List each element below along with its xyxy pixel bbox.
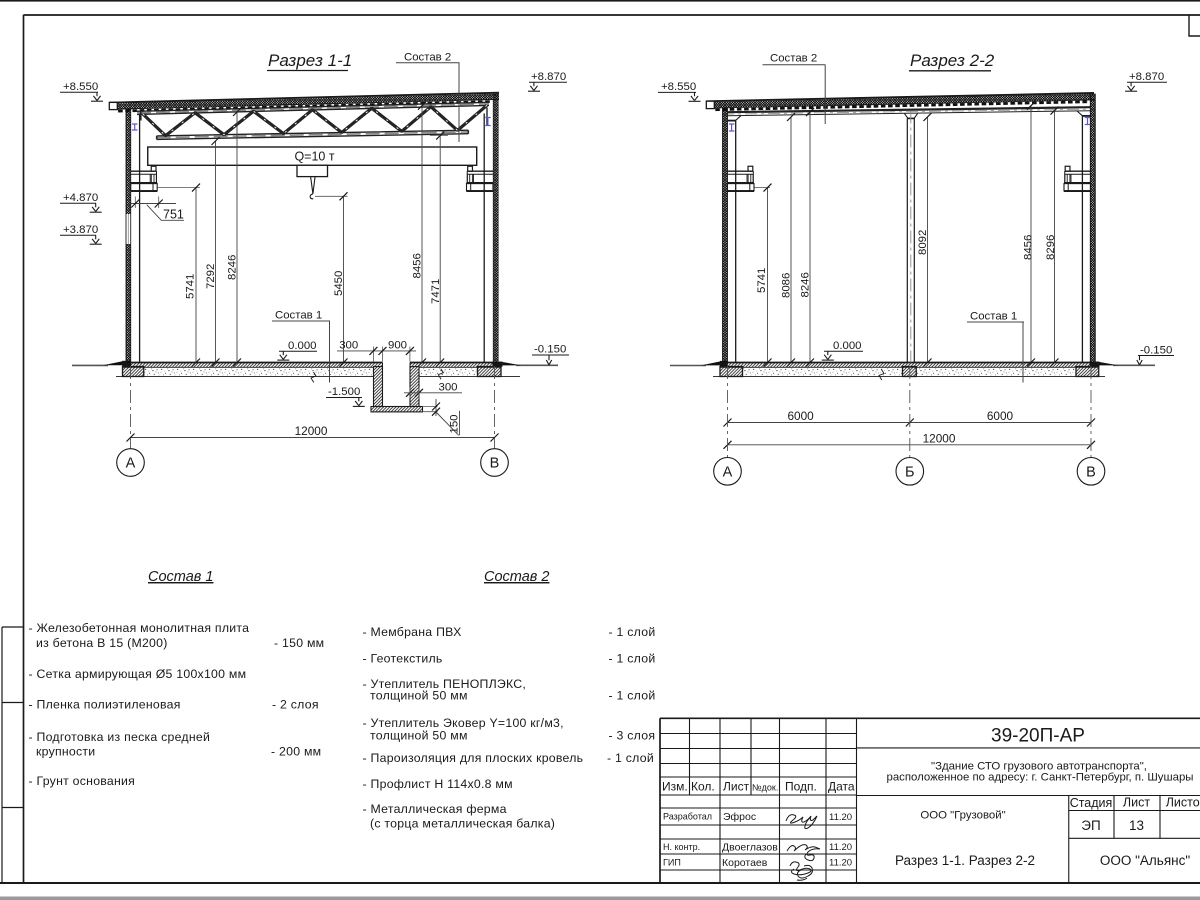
- svg-text:А: А: [126, 456, 136, 472]
- svg-text:Состав 2: Состав 2: [770, 53, 817, 65]
- svg-text:Коротаев: Коротаев: [722, 857, 768, 869]
- svg-text:11.20: 11.20: [829, 812, 852, 823]
- svg-text:11.20: 11.20: [829, 858, 852, 869]
- svg-text:-0.150: -0.150: [534, 344, 566, 356]
- svg-text:Листов: Листов: [1166, 796, 1200, 810]
- svg-text:- 150 мм: - 150 мм: [274, 636, 324, 650]
- svg-text:А: А: [723, 464, 733, 480]
- svg-text:6000: 6000: [987, 409, 1014, 423]
- svg-text:- Пленка полиэтиленовая: - Пленка полиэтиленовая: [29, 698, 181, 712]
- svg-text:13: 13: [1129, 818, 1144, 833]
- svg-text:0.000: 0.000: [833, 340, 862, 352]
- svg-text:ГИП: ГИП: [663, 858, 681, 868]
- svg-text:Состав 2: Состав 2: [404, 52, 451, 64]
- svg-text:Эфрос: Эфрос: [723, 811, 756, 823]
- svg-text:+8.550: +8.550: [661, 81, 696, 93]
- svg-text:расположенное по адресу: г. Са: расположенное по адресу: г. Санкт-Петерб…: [887, 772, 1194, 784]
- svg-text:Состав 2: Состав 2: [484, 569, 549, 585]
- svg-text:В: В: [490, 456, 500, 472]
- svg-text:5450: 5450: [333, 271, 345, 296]
- svg-text:-1.500: -1.500: [328, 386, 360, 398]
- svg-text:7471: 7471: [430, 279, 442, 304]
- svg-text:Состав 1: Состав 1: [275, 310, 322, 322]
- svg-text:Н. контр.: Н. контр.: [663, 842, 700, 852]
- svg-text:- Металлическая ферма: - Металлическая ферма: [363, 802, 507, 816]
- svg-text:Разработал: Разработал: [663, 812, 712, 822]
- svg-text:- 1 слой: - 1 слой: [609, 652, 656, 666]
- svg-text:- 1 слой: - 1 слой: [609, 625, 656, 639]
- svg-text:- Сетка армирующая Ø5 100х100: - Сетка армирующая Ø5 100х100 мм: [29, 667, 247, 681]
- svg-text:Разрез 1-1: Разрез 1-1: [268, 51, 352, 70]
- svg-text:751: 751: [163, 208, 184, 222]
- svg-text:ООО "Альянс": ООО "Альянс": [1100, 853, 1190, 868]
- svg-text:- 1 слой: - 1 слой: [607, 751, 654, 765]
- svg-text:Разрез 2-2: Разрез 2-2: [910, 51, 995, 70]
- svg-text:Состав 1: Состав 1: [970, 311, 1017, 323]
- svg-text:7292: 7292: [205, 264, 217, 289]
- svg-text:- Грунт основания: - Грунт основания: [29, 774, 136, 788]
- svg-text:- Геотекстиль: - Геотекстиль: [363, 652, 443, 666]
- svg-text:12000: 12000: [923, 431, 956, 445]
- svg-text:Изм.: Изм.: [662, 780, 688, 794]
- svg-text:39-20П-АР: 39-20П-АР: [991, 726, 1085, 747]
- svg-text:Дата: Дата: [828, 780, 855, 794]
- svg-text:8296: 8296: [1045, 235, 1057, 260]
- svg-text:(с торца металлическая балка): (с торца металлическая балка): [370, 817, 555, 831]
- svg-text:+3.870: +3.870: [63, 224, 98, 236]
- svg-text:- 3 слоя: - 3 слоя: [609, 729, 656, 743]
- svg-text:- 2 слоя: - 2 слоя: [272, 698, 319, 712]
- svg-text:150: 150: [448, 414, 460, 433]
- svg-text:- 200 мм: - 200 мм: [271, 745, 321, 759]
- svg-text:+4.870: +4.870: [63, 192, 98, 204]
- svg-text:крупности: крупности: [36, 745, 95, 759]
- svg-text:Разрез 1-1. Разрез 2-2: Разрез 1-1. Разрез 2-2: [895, 853, 1035, 868]
- svg-text:- Пароизоляция для плоских кро: - Пароизоляция для плоских кровель: [363, 751, 584, 765]
- svg-text:- Подготовка из песка средней: - Подготовка из песка средней: [29, 730, 211, 744]
- svg-text:ООО "Грузовой": ООО "Грузовой": [920, 810, 1005, 822]
- svg-text:5741: 5741: [185, 274, 197, 299]
- svg-text:8086: 8086: [780, 273, 792, 298]
- svg-text:Лист: Лист: [723, 780, 750, 794]
- svg-text:Стадия: Стадия: [1070, 796, 1113, 810]
- svg-text:11.20: 11.20: [829, 842, 852, 853]
- svg-text:В: В: [1086, 464, 1096, 480]
- svg-text:Б: Б: [905, 464, 915, 480]
- svg-text:- Мембрана ПВХ: - Мембрана ПВХ: [363, 625, 462, 639]
- svg-text:Состав 1: Состав 1: [148, 569, 213, 585]
- svg-text:300: 300: [438, 381, 457, 393]
- svg-text:8456: 8456: [412, 253, 424, 278]
- svg-text:Подп.: Подп.: [785, 780, 817, 794]
- svg-text:+8.870: +8.870: [1129, 71, 1164, 83]
- svg-text:"Здание СТО грузового автотран: "Здание СТО грузового автотранспорта",: [931, 761, 1147, 773]
- svg-text:- Профлист Н 114х0.8 мм: - Профлист Н 114х0.8 мм: [363, 777, 513, 791]
- svg-text:+8.550: +8.550: [63, 81, 98, 93]
- svg-text:Двоеглазов: Двоеглазов: [722, 842, 778, 854]
- svg-text:толщиной 50 мм: толщиной 50 мм: [370, 729, 468, 743]
- svg-text:8092: 8092: [917, 230, 929, 255]
- svg-text:№док.: №док.: [752, 783, 778, 793]
- svg-text:Кол.: Кол.: [691, 780, 715, 794]
- svg-text:8246: 8246: [227, 255, 239, 280]
- svg-text:ЭП: ЭП: [1081, 818, 1100, 833]
- svg-text:- Железобетонная монолитная п: - Железобетонная монолитная плита: [29, 621, 250, 635]
- svg-text:8246: 8246: [799, 272, 811, 297]
- svg-text:+8.870: +8.870: [531, 71, 566, 83]
- svg-text:Лист: Лист: [1123, 796, 1150, 810]
- svg-text:из бетона В 15 (М200): из бетона В 15 (М200): [36, 636, 168, 650]
- svg-text:толщиной 50 мм: толщиной 50 мм: [370, 689, 468, 703]
- svg-text:12000: 12000: [295, 424, 328, 438]
- svg-text:Q=10 т: Q=10 т: [294, 150, 334, 164]
- svg-text:300: 300: [339, 340, 358, 352]
- svg-text:8456: 8456: [1023, 235, 1035, 260]
- svg-text:5741: 5741: [756, 268, 768, 293]
- svg-text:6000: 6000: [787, 409, 814, 423]
- svg-text:900: 900: [388, 340, 407, 352]
- svg-text:-0.150: -0.150: [1140, 345, 1172, 357]
- svg-text:0.000: 0.000: [288, 340, 317, 352]
- svg-text:- 1 слой: - 1 слой: [609, 689, 656, 703]
